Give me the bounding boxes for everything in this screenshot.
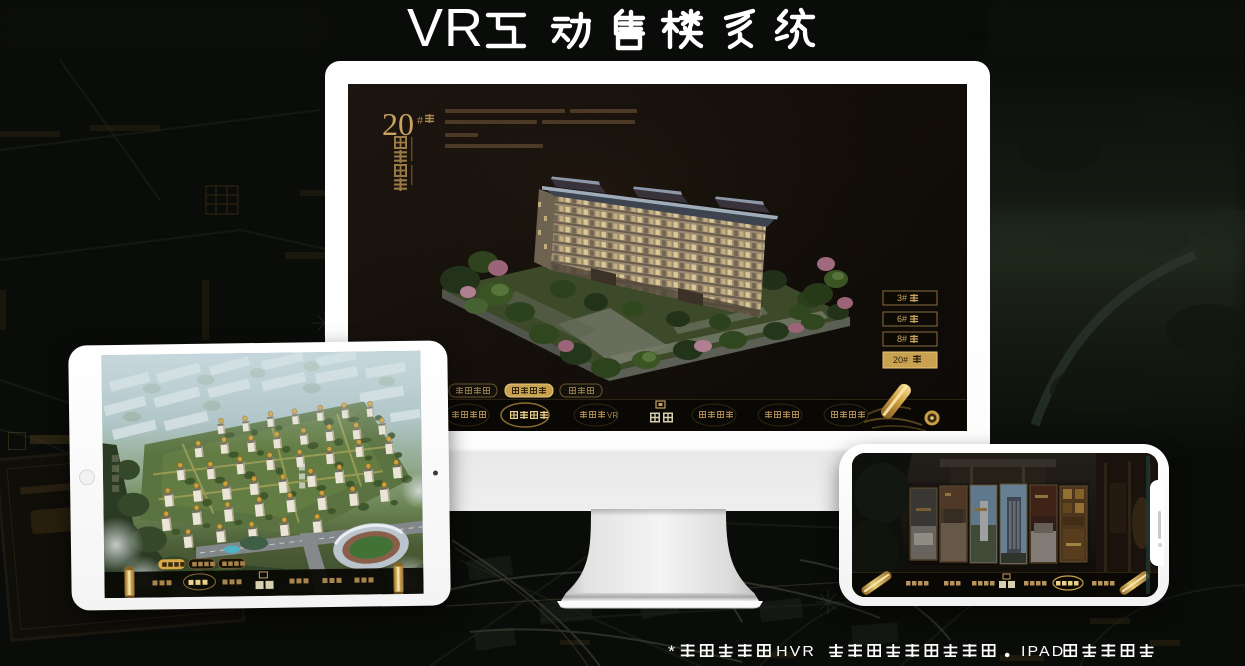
svg-text:6#: 6# bbox=[897, 314, 907, 324]
svg-text:#: # bbox=[417, 113, 423, 127]
svg-text:VR: VR bbox=[607, 411, 618, 420]
svg-text:IPAD: IPAD bbox=[1021, 643, 1065, 659]
svg-text:3#: 3# bbox=[897, 293, 907, 303]
svg-text:VR: VR bbox=[407, 5, 484, 53]
svg-text:HVR: HVR bbox=[776, 643, 816, 659]
svg-text:8#: 8# bbox=[897, 334, 907, 344]
svg-text:20#: 20# bbox=[893, 355, 908, 365]
svg-text:*: * bbox=[668, 641, 675, 660]
